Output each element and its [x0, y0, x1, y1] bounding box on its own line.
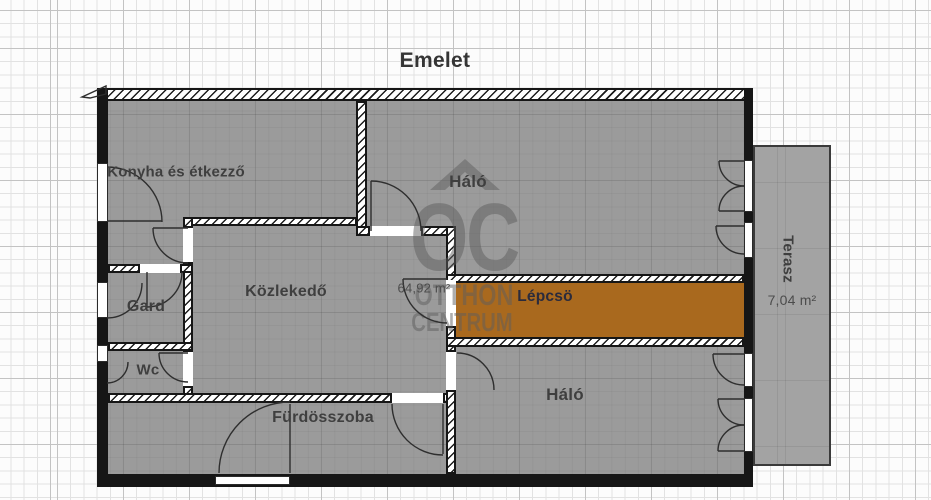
floor-plan-canvas: Emelet OC OTTHON CENTRUM [0, 0, 931, 500]
room-label-wc: Wc [137, 362, 160, 379]
window-wc-left [97, 345, 108, 362]
opening-bathroom-exterior [215, 476, 290, 485]
terrace-area-value: 7,04 m² [768, 292, 817, 308]
watermark-initials: OC [410, 190, 518, 286]
wall-exterior-bottom [97, 474, 753, 487]
room-label-bedroom-top: Háló [449, 172, 487, 192]
opening-wc [183, 352, 193, 386]
watermark-line2: CENTRUM [411, 309, 512, 335]
room-label-wardrobe: Gard [127, 298, 165, 316]
wall-bedroom-hall-left [356, 226, 370, 236]
window-bedroom-top [744, 222, 753, 258]
opening-bathroom [392, 393, 443, 403]
window-bedroom-bottom [744, 353, 753, 387]
window-wardrobe-left [97, 282, 108, 318]
wall-hall-left-seg1 [183, 217, 193, 228]
room-label-terrace: Terasz [780, 235, 797, 283]
french-door-bedroom-bottom [744, 398, 753, 452]
french-door-bedroom-top [744, 160, 753, 212]
room-label-stairs: Lépcsö [517, 288, 572, 306]
wall-wardrobe-top-right [180, 264, 193, 273]
wall-kitchen-hall [183, 217, 357, 226]
page-title: Emelet [400, 49, 471, 73]
wall-bathroom-top-left [108, 393, 392, 403]
wall-exterior-top [97, 88, 753, 101]
wall-hall-left-seg2 [183, 262, 193, 352]
room-label-hallway: Közlekedő [245, 283, 327, 301]
wall-kitchen-bedroom [356, 101, 367, 235]
wall-stairs-bottom [446, 337, 744, 347]
room-label-bathroom: Fürdösszoba [272, 409, 374, 427]
floor-area-value: 64,92 m² [398, 281, 451, 296]
room-label-bedroom-bottom: Háló [546, 385, 584, 405]
opening-wardrobe [140, 264, 180, 273]
wall-wardrobe-wc [108, 342, 193, 351]
opening-kitchen-hall [183, 228, 193, 262]
wall-wardrobe-top-left [108, 264, 140, 273]
wall-bath-bedroom [446, 390, 456, 474]
opening-bedroom-bottom [446, 352, 456, 390]
room-label-kitchen-dining: Konyha és étkezző [107, 164, 245, 181]
